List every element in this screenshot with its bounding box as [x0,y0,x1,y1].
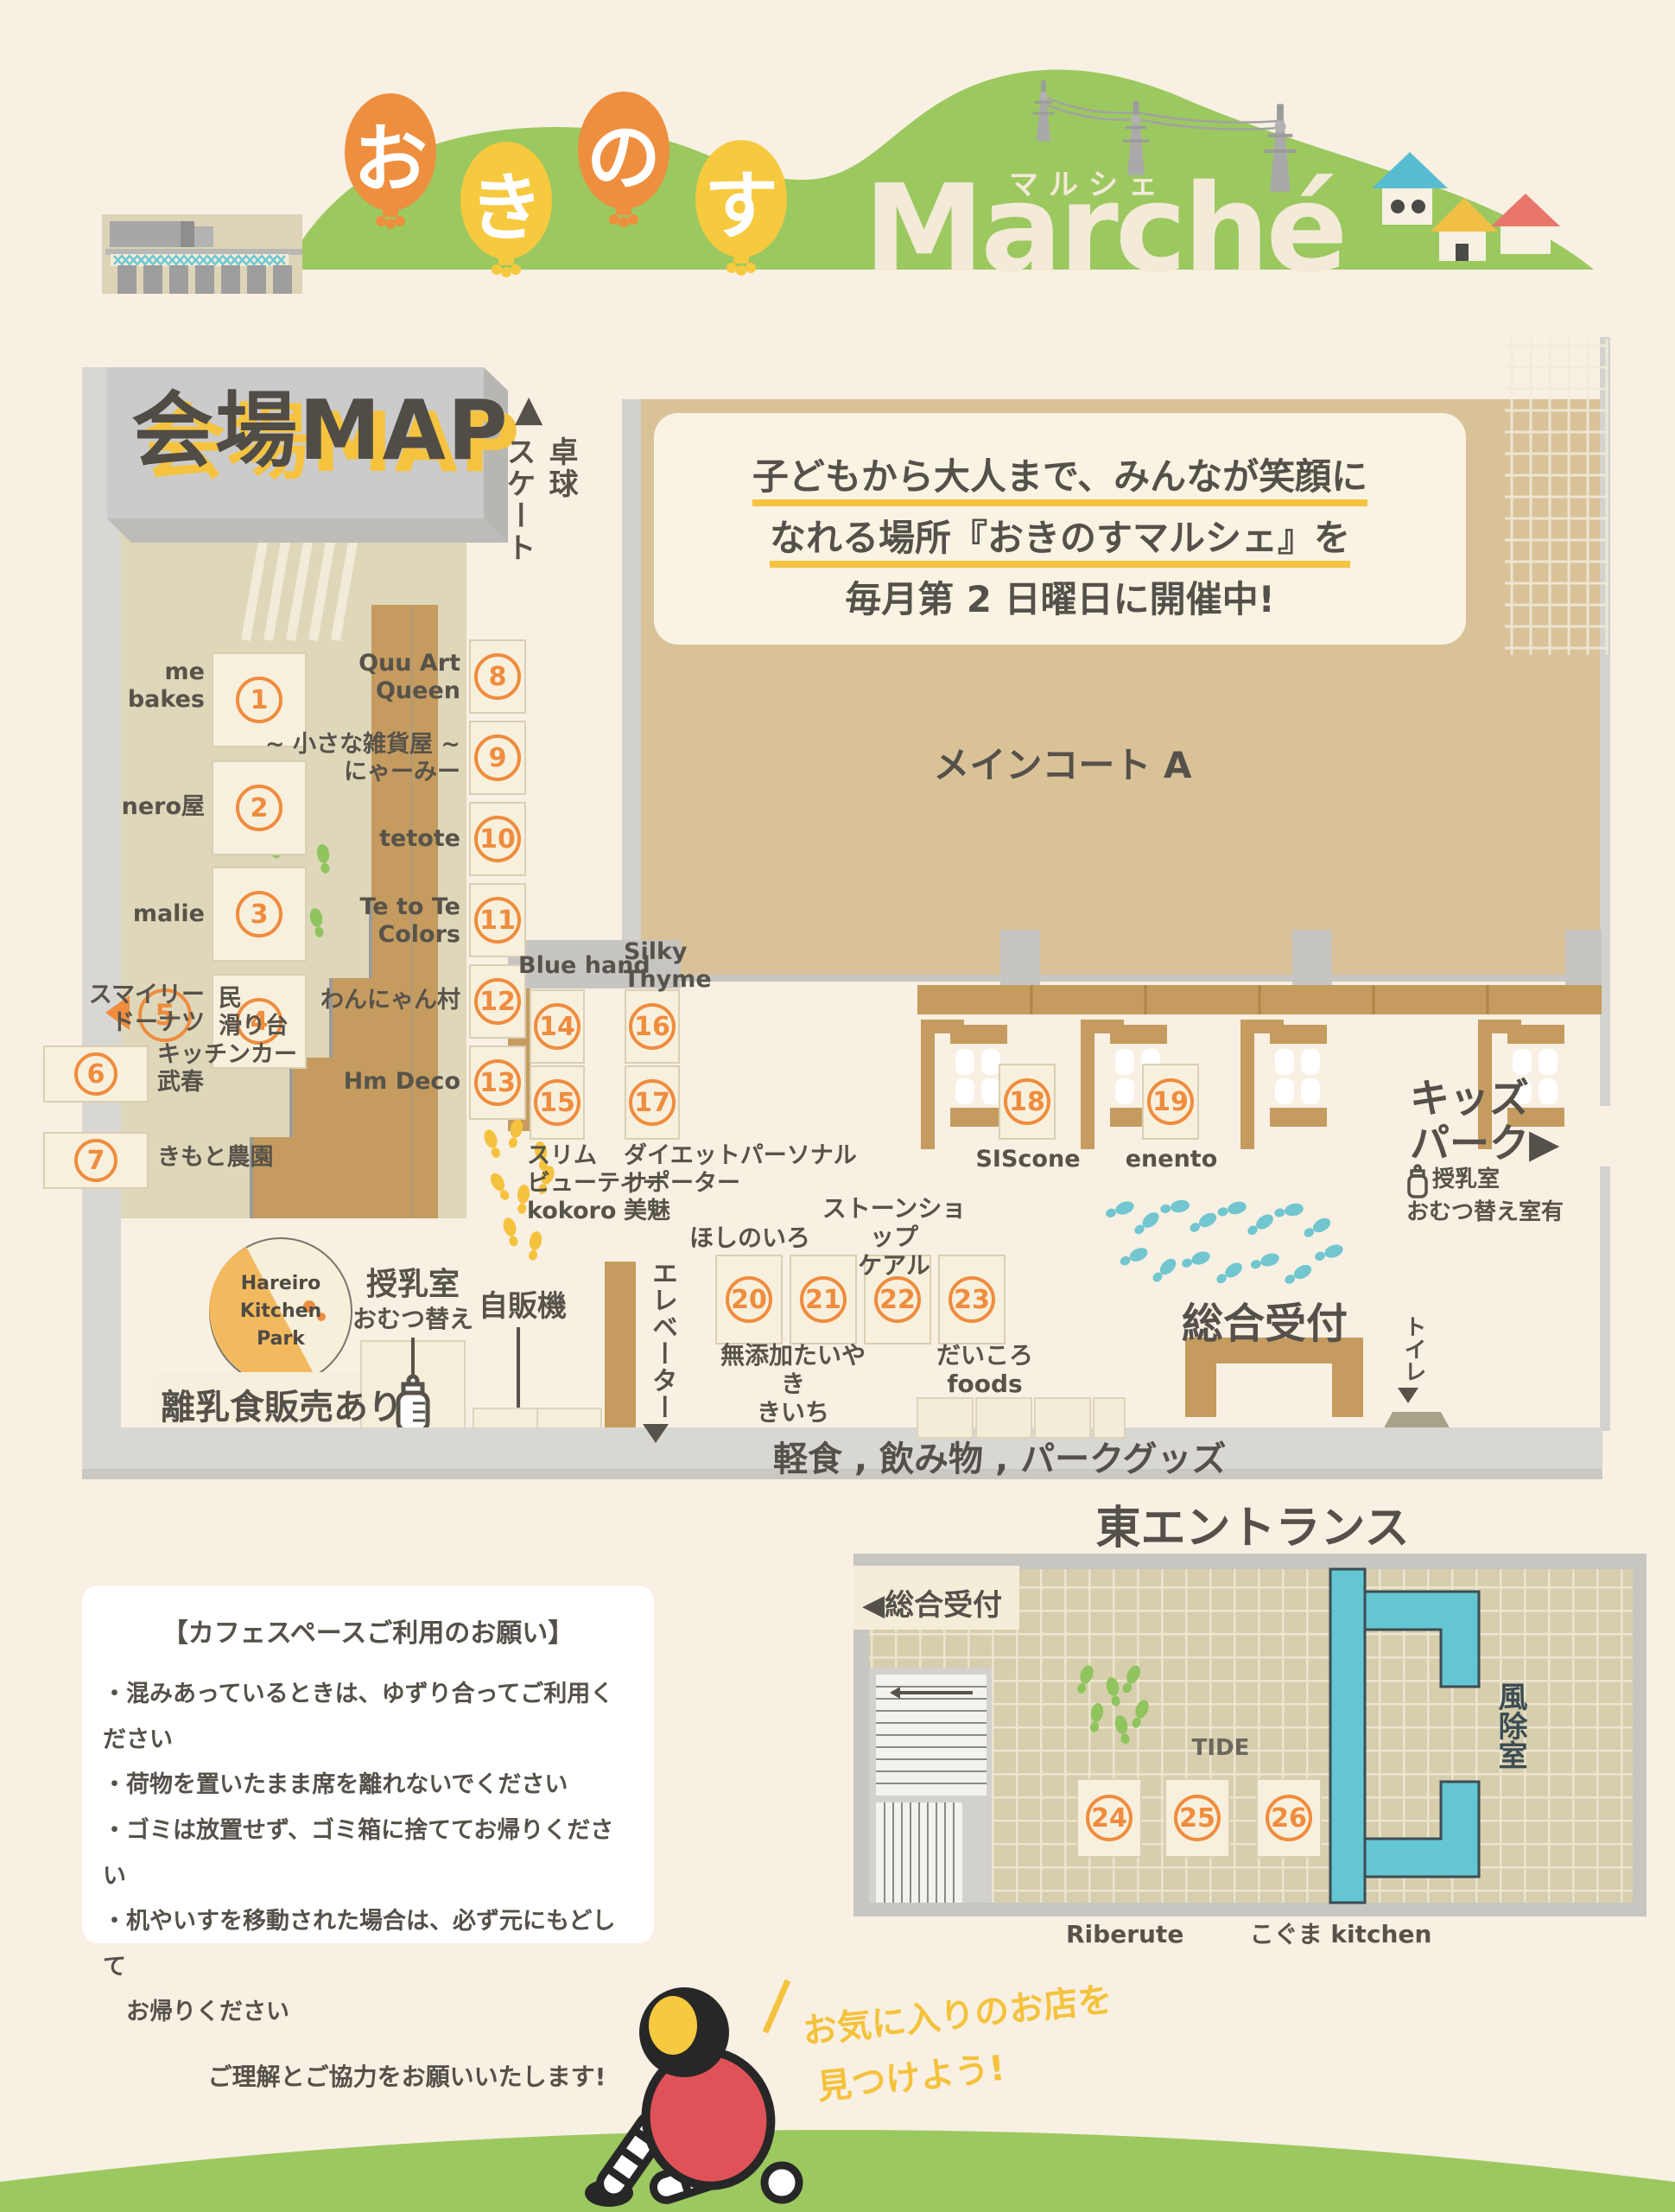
cafe-notice-item: ・ゴミは放置せず、ゴミ箱に捨ててお帰りください [103,1808,633,1899]
booth-20: 20 [715,1255,783,1344]
booth-15: 15 [530,1065,585,1140]
booth-21-label: 無添加たいやき きいち [715,1341,871,1427]
nursing-room-label: 授乳室 [352,1267,473,1303]
booth-9-number: 9 [474,734,521,781]
cafe-notice-item: ・荷物を置いたまま席を離れないでください [103,1763,633,1808]
booth-8-number: 8 [474,653,521,700]
booth-9-label: ~ 小さな雑貨屋 ~ にゃーみー [201,731,460,786]
info-line-3: 毎月第 2 日曜日に開催中! [845,578,1275,620]
booth-14: 14 [530,989,585,1064]
booth-16-label: Silky Thyme [624,938,712,994]
booth-18-label: SIScone [968,1146,1088,1173]
booth-24: 24 [1076,1778,1142,1858]
speech-slash [765,1980,788,2032]
baby-bottle-icon [398,1376,428,1431]
booth-10: 10 [469,802,526,876]
booth-16-number: 16 [629,1003,676,1050]
booth-3-label: malie [75,900,205,928]
booth-20-label: ほしのいろ [681,1224,819,1252]
booth-18: 18 [999,1064,1056,1140]
booth-24-number: 24 [1086,1795,1133,1841]
balloon-char-2: き [460,142,552,259]
booth-8-label: Quu Art Queen [270,650,460,705]
cafe-notice-footer: ご理解とご協力をお願いいたします! [103,2058,633,2093]
booth-2-label: nero屋 [75,793,205,821]
walkway-label: 軽食 , 飲み物 , パークグッズ [773,1431,1227,1481]
booth-24-label: Riberute [1066,1920,1170,1948]
booth-16: 16 [625,989,680,1064]
court-left-wall [622,399,641,980]
booth-7: 7 [43,1132,149,1189]
booth-13-label: Hm Deco [270,1068,460,1096]
skate-area-label: 卓球 スケート [498,436,582,644]
booth-12-label: わんにゃん村 [236,987,460,1014]
cafe-notice-box: 【カフェスペースご利用のお願い】 ・混みあっているときは、ゆずり合ってご利用くだ… [82,1586,654,1943]
booth-13: 13 [469,1046,526,1120]
vending-machine-label: 自販機 [466,1289,579,1324]
booth-17-number: 17 [629,1079,676,1126]
booth-11-number: 11 [474,897,521,944]
info-line-2: なれる場所『おきのすマルシェ』を [770,517,1350,568]
elevator-label: エレベーター [643,1260,681,1433]
booth-10-number: 10 [474,816,521,862]
booth-26-number: 26 [1266,1795,1312,1841]
footprints-teal [1104,1198,1345,1287]
booth-6: 6 [43,1046,149,1103]
building-illustration [102,214,302,294]
booth-22-label: ストーンショップ ケアル [812,1194,976,1280]
right-wall [1600,337,1610,1431]
booth-26-label: こぐま kitchen [1246,1920,1436,1948]
cafe-notice-item: お帰りください [103,1990,633,2036]
east-reception-tab: ◀総合受付 [862,1581,1002,1624]
kids-park-label: キッズ パーク▶ [1410,1077,1559,1166]
balloon-char-3: の [578,92,669,209]
booth-14-number: 14 [534,1003,581,1050]
info-box: 子どもから大人まで、みんなが笑顔に なれる場所『おきのすマルシェ』を 毎月第 2… [654,413,1466,645]
cafe-notice-title: 【カフェスペースご利用のお願い】 [103,1611,633,1649]
bottom-hill [0,2130,1675,2212]
booth-2-number: 2 [236,785,282,831]
cafe-notice-item: ・混みあっているときは、ゆずり合ってご利用ください [103,1672,633,1763]
booth-11-label: Te to Te Colors [270,893,460,949]
toilet-arrow-icon [1398,1388,1418,1403]
elevator-arrow-icon [643,1424,669,1443]
balloon-char-1: お [345,93,436,211]
kids-park-nursing-note: 授乳室 [1432,1166,1500,1193]
header-hill-illustration [102,70,1594,294]
booth-9: 9 [469,721,526,795]
kids-park-door-gap [1595,1106,1614,1166]
hareiro-kitchen-label: Hareiro Kitchen Park [212,1270,350,1353]
reception-label: 総合受付 [1182,1289,1348,1350]
booth-13-number: 13 [474,1059,521,1106]
main-court-label: メインコート A [881,736,1244,789]
booth-25-number: 25 [1174,1795,1221,1841]
booth-26: 26 [1256,1778,1322,1858]
booth-10-label: tetote [270,825,460,853]
toilet-label: トイレ [1398,1315,1430,1393]
windbreak-room-label: 風除室 [1489,1681,1532,1820]
booth-12-number: 12 [474,978,521,1025]
booth-17: 17 [625,1065,680,1140]
booth-11: 11 [469,883,526,957]
booth-6-number: 6 [74,1052,117,1096]
booth-18-number: 18 [1004,1078,1050,1125]
booth-20-number: 20 [726,1276,772,1323]
balloon-char-4: す [695,140,787,257]
booth-7-number: 7 [74,1139,117,1182]
east-entrance-title: 東エントランス [993,1491,1512,1556]
kids-park-diaper-note: おむつ替え室有 [1406,1199,1564,1226]
booth-23-number: 23 [949,1276,995,1323]
left-wall [82,367,121,1430]
venue-map-title: 会場MAP [131,391,510,473]
booth-21-number: 21 [800,1276,847,1323]
skate-arrow-icon: ▲ [515,387,542,429]
booth-22-number: 22 [874,1276,921,1323]
cafe-notice-item: ・机やいすを移動された場合は、必ず元にもどして [103,1899,633,1990]
booth-4-label: スマイリー ドーナツ [58,982,205,1037]
booth-15-number: 15 [534,1079,581,1126]
booth-19-number: 19 [1147,1078,1194,1125]
booth-19-label: enento [1111,1146,1232,1173]
booth-23-label: だいころ foods [898,1341,1071,1398]
info-line-1: 子どもから大人まで、みんなが笑顔に [752,455,1367,506]
brand-title: Marché [864,169,1344,290]
house-red-icon [1491,194,1560,254]
booth-25: 25 [1164,1778,1230,1858]
booth-1-label: me bakes [75,658,205,714]
diaper-change-label: おむつ替え [344,1305,482,1333]
baby-food-label: 離乳食販売あり [161,1379,403,1429]
baby-bottle-small-icon [1409,1166,1426,1197]
booth-7-label: きもと農園 [157,1144,273,1172]
event-map-poster: お き の す マルシェ Marché 会場MAP ▲ 卓球 スケート 子どもか… [0,0,1675,2212]
booth-25-label: TIDE [1182,1735,1259,1762]
elevator-shaft [605,1262,636,1429]
booth-8: 8 [469,639,526,714]
booth-19: 19 [1142,1064,1199,1140]
